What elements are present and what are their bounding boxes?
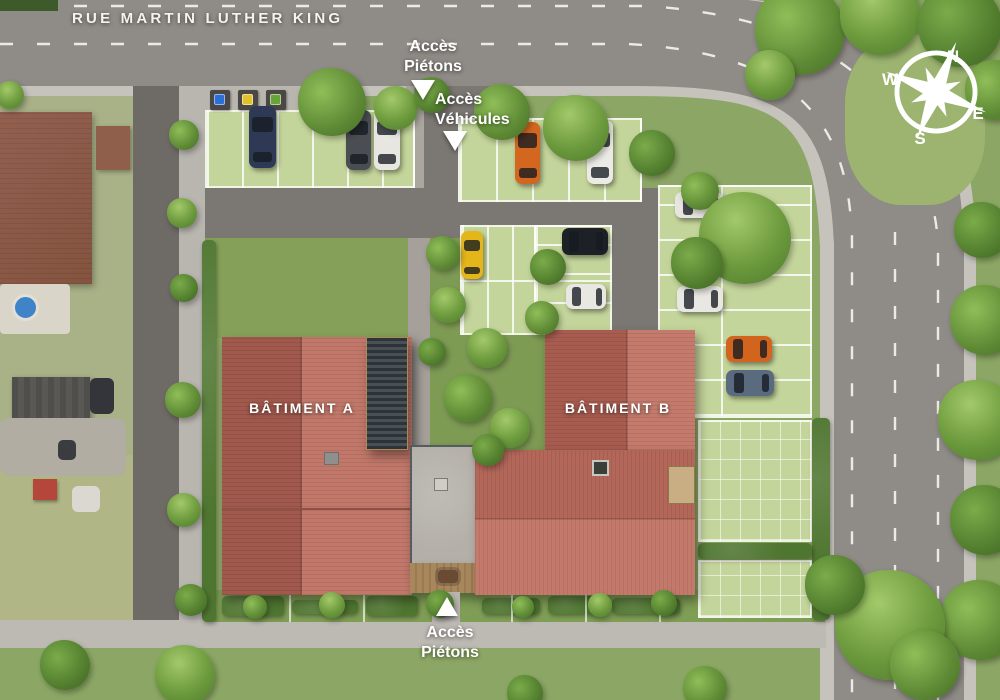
building-b-roof-upper [545,330,695,450]
car-windshield [518,133,537,148]
building-b-roof-lower [475,450,695,595]
tree [543,95,609,161]
driveway-west [133,86,179,622]
access-pedestrian-top-line1: Accès [378,37,488,57]
building-a-pergola [366,337,408,450]
car-windshield [569,231,579,252]
fence-line [585,592,587,622]
tree [512,596,534,618]
car [249,106,276,168]
tree [167,493,201,527]
car-rear-window [760,340,767,359]
paver-grid-east-1 [698,420,812,542]
fence-line [289,592,291,622]
corner-hedge [0,0,58,11]
arrow-vehicles-icon [443,131,467,151]
building-a-label: BÂTIMENT A [212,400,392,416]
tree [40,640,90,690]
paver-grid-east-2 [698,560,812,618]
tree [588,593,612,617]
access-pedestrian-bottom-label: Accès Piétons [388,623,512,663]
tree [467,328,507,368]
car [562,228,608,255]
access-pedestrian-bottom-line1: Accès [388,623,512,643]
tree [243,595,267,619]
car [726,336,772,362]
tree [430,287,466,323]
tree [472,434,504,466]
tree [169,120,199,150]
building-b-terrace [668,466,695,504]
waste-bin [270,94,281,105]
tree [170,274,198,302]
car [677,286,723,312]
building-a-roof-vent [324,452,339,465]
tree [418,338,446,366]
access-pedestrian-top-line2: Piétons [378,57,488,77]
connector-vent [434,478,448,491]
tree [890,630,960,700]
car-rear-window [596,232,603,251]
site-plan: RUE MARTIN LUTHER KING Accès Piétons Acc… [0,0,1000,700]
hedge [202,240,216,622]
fence-line [363,592,365,622]
tree [426,236,460,270]
building-b-label: BÂTIMENT B [540,400,696,416]
car-rear-window [464,267,480,275]
access-vehicles-line1: Accès [435,90,535,110]
hedge [698,543,812,559]
car-windshield [252,117,273,132]
car-rear-window [762,374,770,393]
car-windshield [464,240,481,252]
tree [444,374,492,422]
street-name-label: RUE MARTIN LUTHER KING [72,10,343,27]
car-rear-window [350,154,368,164]
tree [167,198,197,228]
tree [298,68,366,136]
tree [745,50,795,100]
car-rear-window [378,154,397,164]
waste-bin [242,94,253,105]
waste-bin [214,94,225,105]
tree [175,584,207,616]
deck-table [438,570,458,583]
car [566,284,606,309]
tree [319,592,345,618]
connector-roof [410,445,478,567]
bin-pad [210,90,230,110]
access-pedestrian-bottom-line2: Piétons [388,643,512,663]
car-rear-window [711,290,718,309]
car [461,231,483,279]
tree [954,202,1000,258]
car-windshield [733,339,743,359]
tree [155,645,215,700]
access-pedestrian-top-label: Accès Piétons [378,37,488,77]
car-rear-window [253,152,272,162]
access-vehicles-label: Accès Véhicules [435,90,535,130]
grass-north-gardens [205,238,412,338]
building-b-skylight [592,460,609,476]
arrow-pedestrian-bottom-icon [436,597,458,616]
car-windshield [572,287,581,306]
car-windshield [734,373,745,393]
car [726,370,774,396]
car-rear-window [591,167,610,177]
car-windshield [684,289,694,309]
tree [671,237,723,289]
tree [651,590,677,616]
tree [805,555,865,615]
tree [165,382,201,418]
building-a-ridge [222,508,412,510]
hedge [366,596,418,616]
tree [530,249,566,285]
access-vehicles-line2: Véhicules [435,110,535,130]
car-rear-window [519,168,537,178]
tree [629,130,675,176]
arrow-pedestrian-top-icon [411,80,435,100]
tree [525,301,559,335]
car-rear-window [596,288,602,306]
